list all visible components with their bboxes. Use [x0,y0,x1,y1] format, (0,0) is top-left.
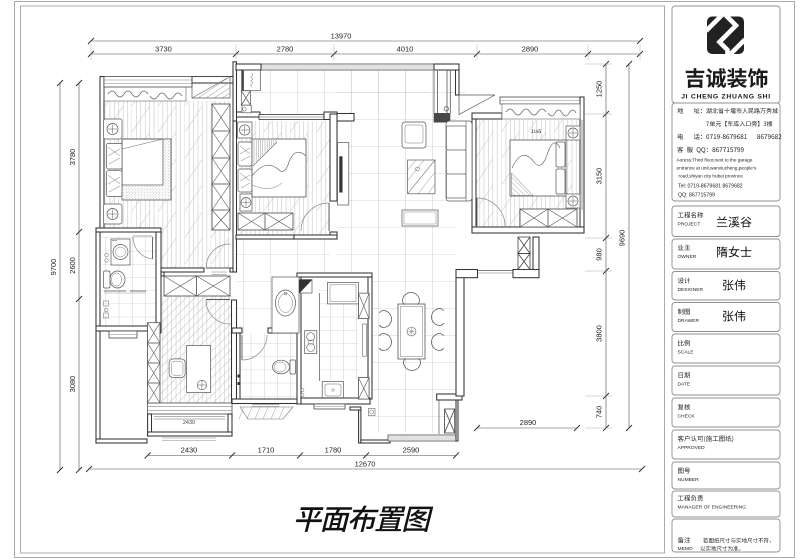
svg-text:DESIGNER: DESIGNER [678,287,704,293]
svg-text:NUMBER: NUMBER [678,477,700,483]
svg-text:4010: 4010 [397,45,414,54]
svg-text:PROJECT: PROJECT [678,222,701,228]
svg-text:1250: 1250 [595,81,604,98]
svg-text:2600: 2600 [68,257,77,274]
svg-text:3800: 3800 [595,325,604,342]
svg-text:2890: 2890 [522,45,539,54]
svg-text:MANAGER OF ENGINEERING: MANAGER OF ENGINEERING [678,505,747,511]
svg-text:entrance at unit,wanxiucheng,p: entrance at unit,wanxiucheng,people's [677,166,757,171]
svg-text:OWNER: OWNER [678,254,697,260]
svg-text:980: 980 [595,248,604,261]
svg-text:MEMO: MEMO [678,546,693,552]
svg-text:APPROVED: APPROVED [678,445,706,451]
svg-text:Aoress:Third floor,next to the: Aoress:Third floor,next to the garage [677,158,753,163]
svg-text:Tel: 0719-8679681 8679682: Tel: 0719-8679681 8679682 [678,184,743,190]
svg-text:2890: 2890 [520,418,537,427]
svg-text:CHECK: CHECK [678,414,696,420]
svg-text:3080: 3080 [68,376,77,393]
svg-text:road,shiyan city hubei provinc: road,shiyan city hubei province [679,174,744,179]
svg-text:13970: 13970 [331,32,352,41]
svg-text:3730: 3730 [155,45,172,54]
svg-text:2780: 2780 [277,45,294,54]
svg-text:1710: 1710 [258,446,275,455]
svg-text:3780: 3780 [68,149,77,166]
svg-text:3150: 3150 [595,168,604,185]
svg-text:740: 740 [595,406,604,419]
svg-text:QQ: 867715799: QQ: 867715799 [678,193,715,199]
svg-text:9700: 9700 [49,259,58,276]
svg-text:SCALE: SCALE [678,350,695,356]
svg-text:2590: 2590 [403,446,420,455]
svg-text:1780: 1780 [325,446,342,455]
svg-text:JI CHENG ZHUANG SHI: JI CHENG ZHUANG SHI [681,94,771,101]
svg-text:DATE: DATE [678,382,691,388]
svg-text:12670: 12670 [355,460,376,469]
svg-text:DRAWER: DRAWER [678,318,700,324]
svg-text:2430: 2430 [183,420,195,426]
svg-text:2430: 2430 [181,446,198,455]
svg-text:9690: 9690 [618,230,627,247]
